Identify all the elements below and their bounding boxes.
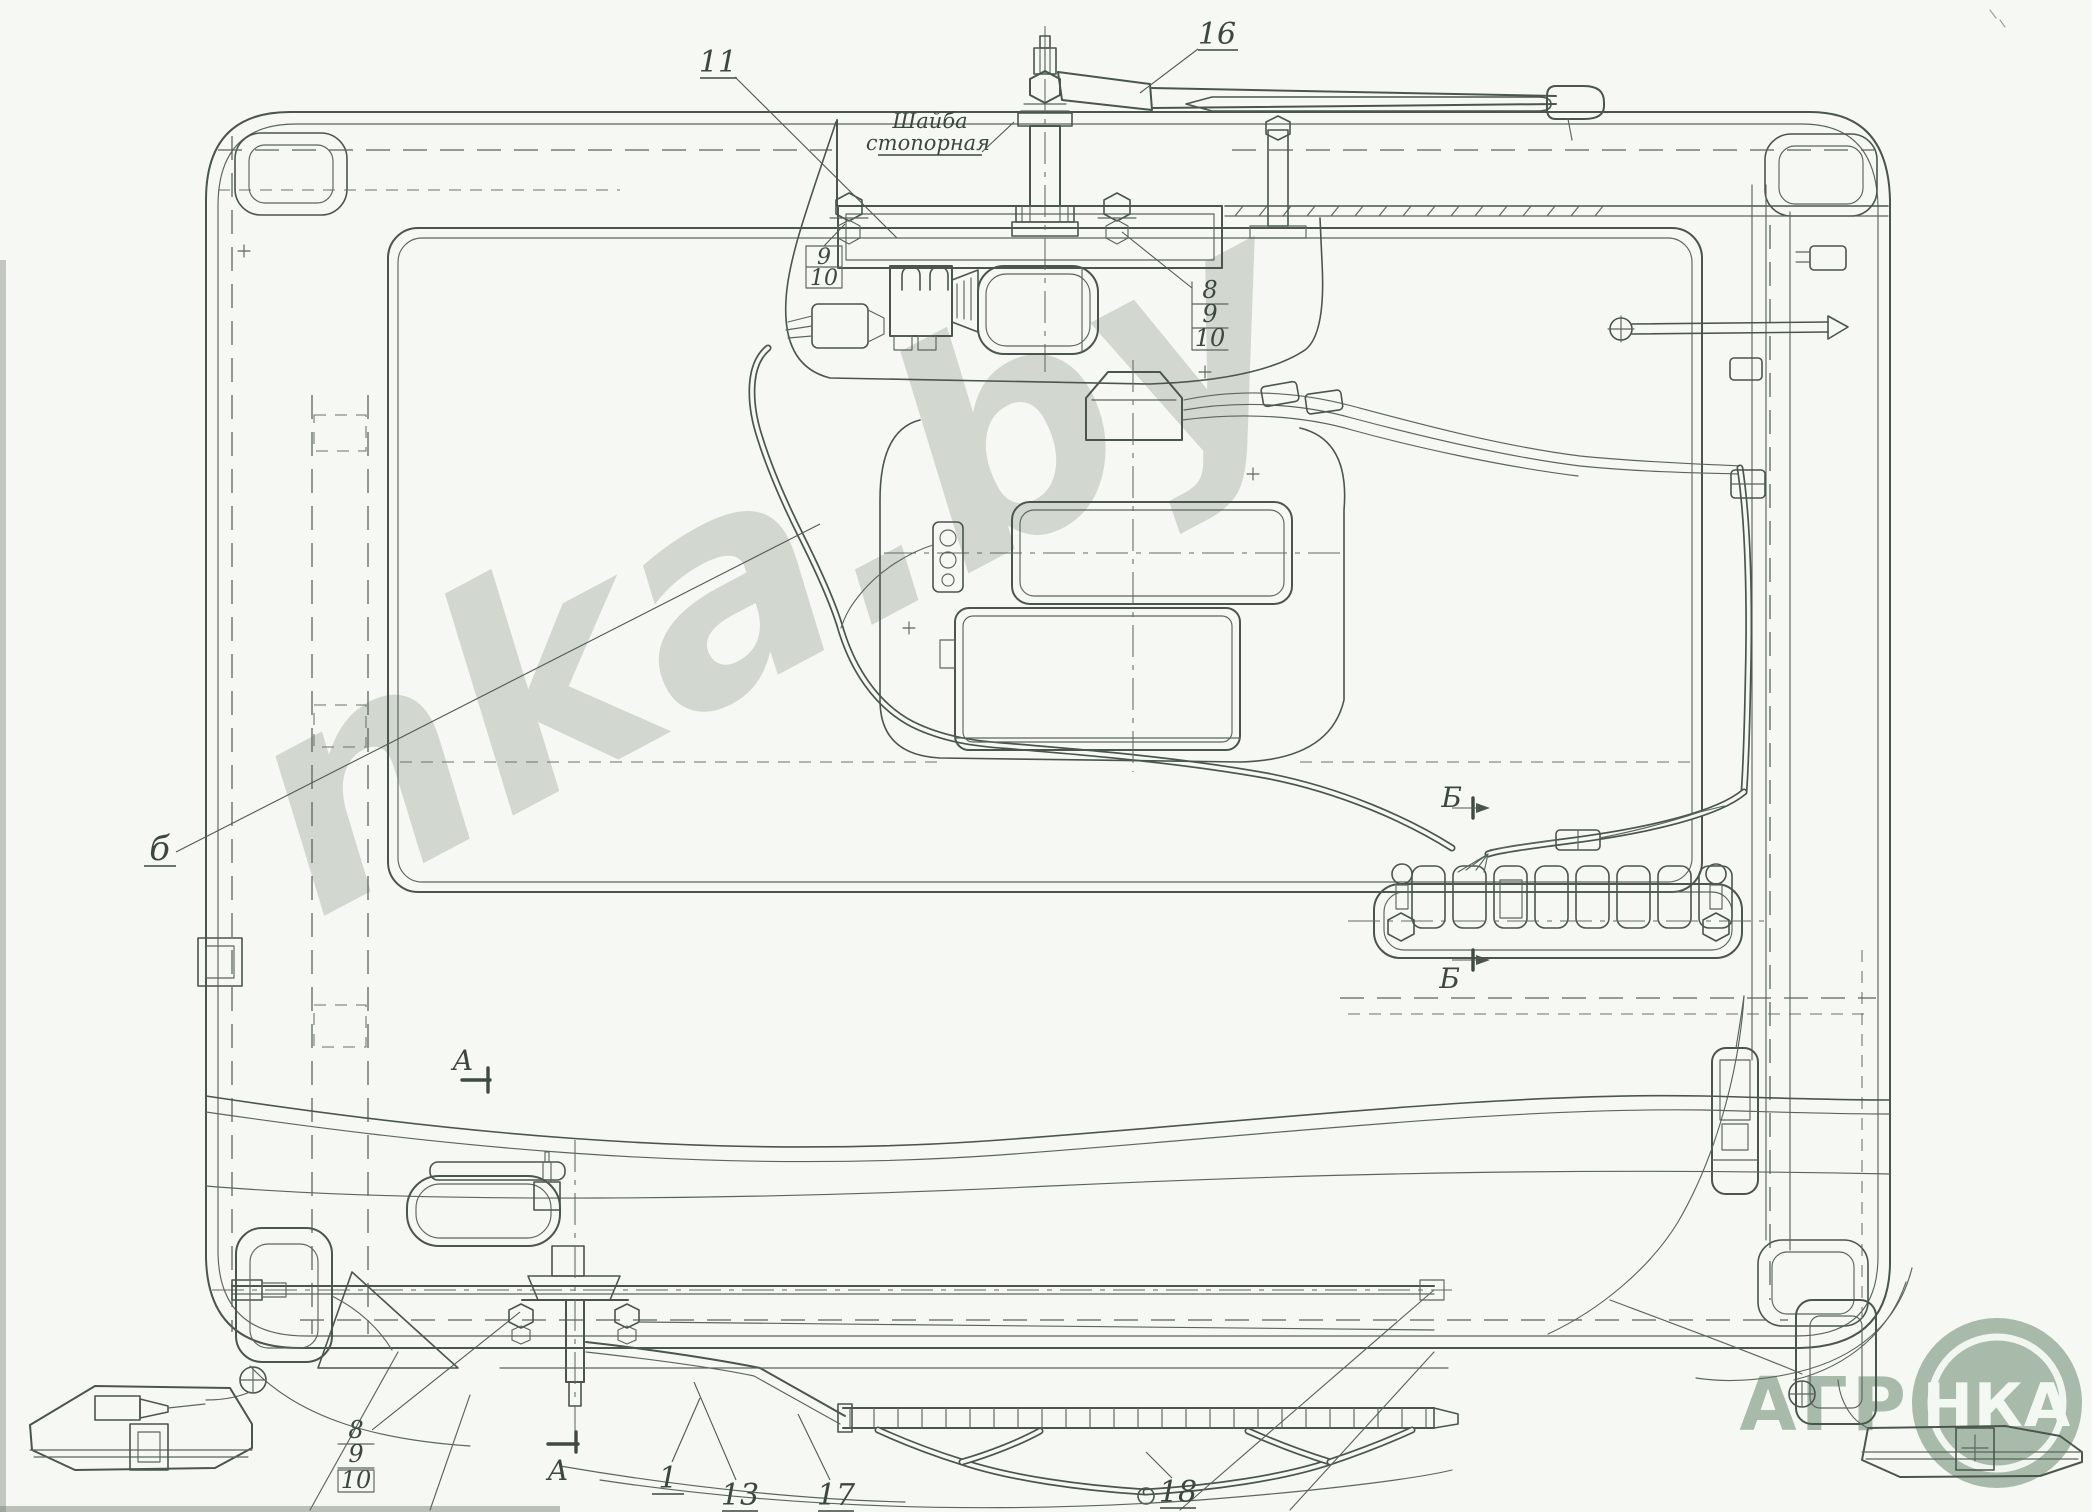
cab-roof-electrical-assembly-drawing: nka.by АГР НКА	[0, 0, 2092, 1512]
annotation-lock-washer-line2: стопорная	[866, 131, 990, 155]
callout-1: 1	[658, 1461, 677, 1496]
callout-harness-b: б	[149, 829, 170, 869]
arm-end-bracket	[1547, 86, 1604, 119]
callout-17: 17	[817, 1478, 856, 1512]
watermark-text: nka.by	[186, 135, 1366, 983]
logo-text-left: АГР	[1739, 1362, 1910, 1448]
callout-16: 16	[1198, 17, 1236, 52]
left-hinge	[198, 938, 242, 986]
callout-13: 13	[721, 1478, 759, 1512]
pillar-connector-1	[1730, 358, 1762, 380]
stack-bottom-left-r2: 9	[348, 1440, 363, 1468]
blade-support	[1268, 130, 1288, 226]
annotation-lock-washer-line1: Шайба	[891, 109, 967, 133]
section-marker-b-top: Б	[1440, 781, 1462, 814]
section-marker-b-bottom: Б	[1438, 962, 1460, 995]
stack-top-right-r3: 10	[1195, 324, 1226, 352]
section-marker-a-top: А	[450, 1044, 473, 1077]
stack-top-left-r2: 10	[810, 266, 838, 291]
watermark: nka.by	[186, 135, 1366, 983]
corner-ear-bottom-right	[1758, 1240, 1868, 1326]
agronka-logo: АГР НКА	[1739, 1318, 2082, 1488]
drawing-page: nka.by АГР НКА	[0, 0, 2092, 1512]
callout-18: 18	[1159, 1475, 1197, 1510]
callout-11: 11	[699, 45, 737, 80]
right-side-wiring	[1488, 185, 1912, 1380]
logo-text-circle: НКА	[1923, 1371, 2072, 1441]
wiper-arm-head	[1058, 72, 1152, 110]
section-marker-a-bottom: А	[545, 1454, 568, 1487]
pillar-connector-top	[1810, 246, 1846, 270]
rear-roof-band	[206, 1096, 1890, 1198]
